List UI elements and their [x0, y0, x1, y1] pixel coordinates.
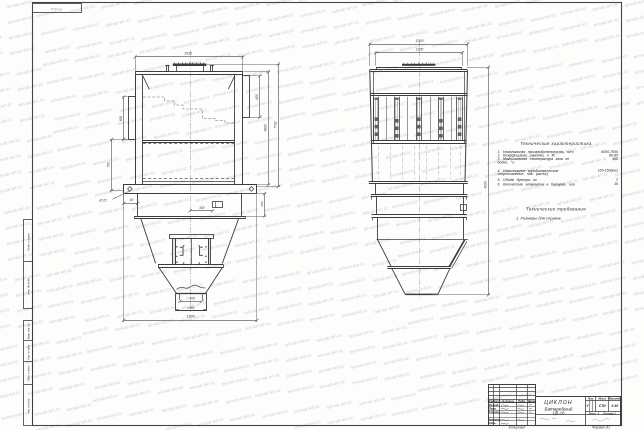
svg-text:Лит.: Лит.: [587, 397, 594, 400]
svg-text:Лист: Лист: [587, 412, 596, 416]
svg-text:1632: 1632: [184, 52, 192, 56]
svg-text:4800: 4800: [264, 124, 268, 131]
svg-text:Подп. и дата: Подп. и дата: [28, 365, 31, 381]
svg-text:Т.контр.: Т.контр.: [489, 410, 501, 414]
svg-text:6. Количество элементов в: 6. Количество элементов в батарее, шт: [498, 182, 575, 186]
svg-text:сопротивление, н/м² (кгс/м²): сопротивление, н/м² (кгс/м²): [498, 172, 548, 176]
svg-text:□480: □480: [187, 306, 195, 310]
svg-text:Взам. инв. №: Взам. инв. №: [28, 323, 31, 339]
svg-text:Инв. № дубл.: Инв. № дубл.: [27, 277, 31, 294]
svg-text:2: 2: [615, 178, 618, 182]
svg-text:Копировал: Копировал: [509, 426, 526, 430]
svg-text:□ 400: □ 400: [187, 297, 196, 301]
svg-text:40: 40: [130, 198, 134, 202]
svg-text:7732: 7732: [274, 121, 278, 128]
svg-text:1320: 1320: [416, 39, 424, 43]
svg-text:600: 600: [255, 94, 259, 100]
svg-text:26.05-11: 26.05-11: [49, 7, 62, 11]
svg-text:Ø 22: Ø 22: [98, 198, 106, 202]
svg-text:4000: 4000: [484, 181, 488, 188]
svg-text:1:10: 1:10: [611, 404, 618, 408]
svg-text:400: 400: [260, 201, 264, 206]
svg-text:1. Размеры для справок.: 1. Размеры для справок.: [516, 216, 562, 221]
svg-text:№ докум.: № докум.: [502, 399, 515, 403]
svg-text:300: 300: [199, 206, 205, 210]
svg-text:Инв. № подл.: Инв. № подл.: [28, 398, 31, 414]
svg-text:100-150(кгс): 100-150(кгс): [598, 169, 618, 173]
svg-text:более, °С: более, °С: [498, 160, 516, 164]
svg-text:Подп. и дата: Подп. и дата: [27, 233, 31, 251]
svg-text:Пров.: Пров.: [489, 407, 497, 411]
svg-text:Подп.: Подп.: [518, 399, 526, 403]
svg-text:5. Объём бункера, м³: 5. Объём бункера, м³: [498, 178, 538, 182]
svg-text:Лист: Лист: [492, 399, 501, 403]
svg-text:1800: 1800: [187, 315, 195, 319]
svg-text:Технические характеристика: Технические характеристика: [520, 141, 592, 146]
svg-text:600: 600: [119, 116, 123, 122]
svg-text:Дата: Дата: [527, 399, 536, 403]
svg-text:Масштаб: Масштаб: [609, 397, 621, 400]
svg-text:Масса: Масса: [599, 397, 607, 400]
svg-text:Формат А1: Формат А1: [592, 426, 610, 430]
svg-text:750: 750: [107, 162, 111, 168]
svg-text:16: 16: [614, 182, 618, 186]
svg-text:Разраб.: Разраб.: [489, 403, 499, 407]
svg-text:1200: 1200: [416, 47, 424, 51]
svg-text:ЦИКЛОН: ЦИКЛОН: [544, 400, 572, 406]
svg-text:Листов 1: Листов 1: [602, 412, 616, 416]
svg-text:Технические требования: Технические требования: [526, 207, 586, 212]
svg-text:Инв. № дубл.: Инв. № дубл.: [28, 344, 31, 360]
svg-text:СТИ: СТИ: [599, 404, 606, 408]
svg-text:400: 400: [612, 157, 618, 161]
